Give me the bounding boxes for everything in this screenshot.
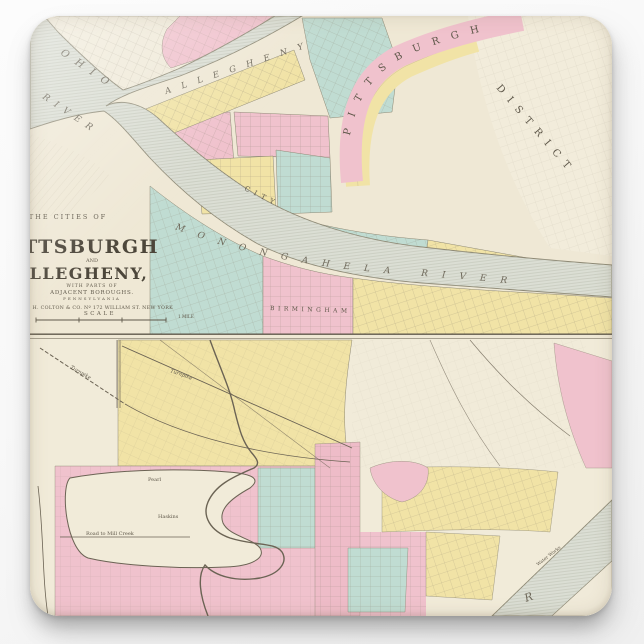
stone-coaster: OHIO RIVER ALLEGHENY MONONGAHELA RIVER P… (30, 16, 612, 616)
antique-pittsburgh-map-print: OHIO RIVER ALLEGHENY MONONGAHELA RIVER P… (30, 16, 612, 616)
product-photo-background: OHIO RIVER ALLEGHENY MONONGAHELA RIVER P… (0, 0, 644, 644)
haskins-street-label: Haskins (158, 514, 179, 520)
title-sub1: WITH PARTS OF (66, 283, 117, 289)
title-city2: ALLEGHENY, (30, 264, 148, 283)
title-city1: PITTSBURGH (30, 236, 159, 258)
scale-label: SCALE (84, 311, 116, 317)
upper-map-panel: OHIO RIVER ALLEGHENY MONONGAHELA RIVER P… (30, 16, 612, 339)
title-kicker: THE CITIES OF (30, 213, 107, 221)
mill-creek-road-label: Road to Mill Creek (86, 531, 135, 537)
scale-mile-label: 1 MILE (178, 314, 194, 319)
panel-divider (30, 334, 612, 338)
lower-map-panel: Turnpike Turnpike Road to Mill Creek Pea… (30, 339, 612, 616)
pearl-street-label: Pearl (148, 477, 161, 483)
title-state: PENNSYLVANIA (63, 296, 121, 301)
